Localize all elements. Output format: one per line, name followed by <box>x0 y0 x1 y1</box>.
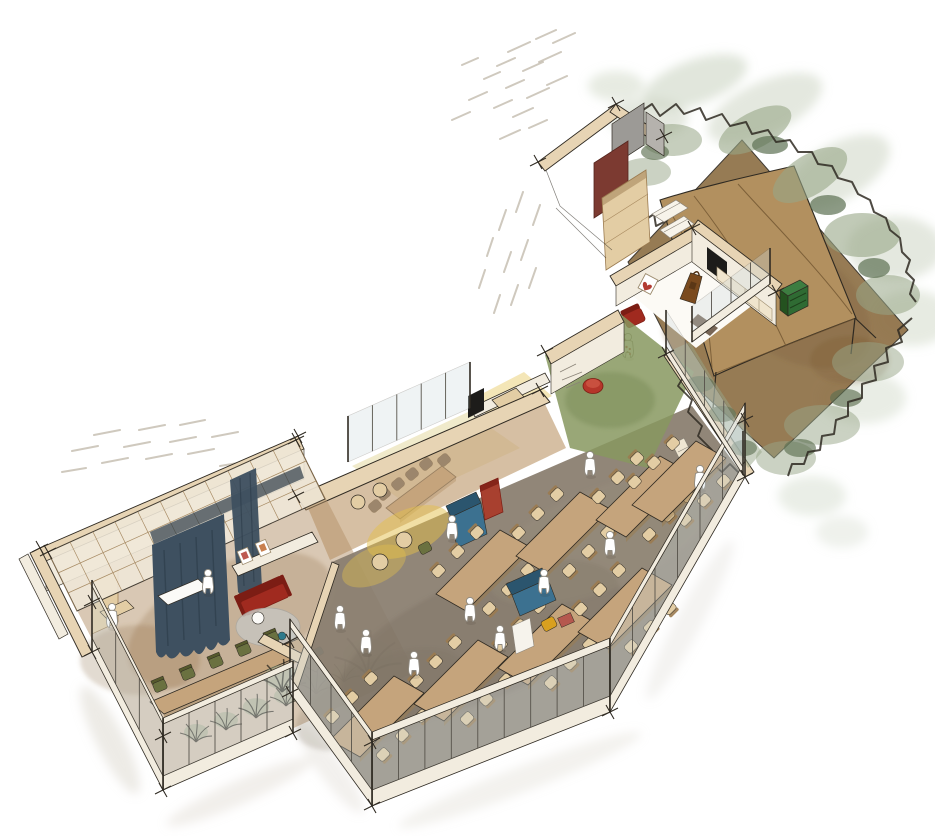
round-lamp <box>373 483 387 497</box>
pencil-stroke <box>504 252 511 272</box>
pencil-stroke <box>529 268 536 288</box>
red-pouf <box>583 379 603 394</box>
pencil-stroke <box>94 430 120 435</box>
pencil-stroke <box>511 285 518 305</box>
pencil-stroke <box>533 205 540 225</box>
round-table <box>396 532 412 548</box>
pencil-stroke <box>452 112 470 120</box>
pencil-stroke <box>521 240 528 260</box>
pencil-stroke <box>513 108 533 117</box>
pencil-stroke <box>500 130 520 139</box>
round-lamp <box>351 495 365 509</box>
pencil-stroke <box>146 454 172 459</box>
pencil-stroke <box>462 58 478 65</box>
pencil-stroke <box>506 80 524 88</box>
pencil-stroke <box>508 42 530 52</box>
pencil-stroke <box>494 295 500 313</box>
pencil-stroke <box>188 449 214 454</box>
pencil-stroke <box>72 446 98 451</box>
pencil-stroke <box>529 120 547 128</box>
pencil-stroke <box>536 30 556 39</box>
pencil-stroke <box>527 88 549 98</box>
grass-wash <box>565 372 655 428</box>
coffee-table <box>252 612 264 624</box>
pencil-stroke <box>494 100 512 108</box>
pencil-stroke <box>497 58 515 66</box>
pencil-stroke <box>180 420 205 425</box>
pencil-stroke <box>212 432 238 437</box>
pencil-stroke <box>553 33 575 43</box>
sketch-canvas <box>0 0 935 836</box>
round-table <box>372 554 388 570</box>
pencil-stroke <box>102 458 128 463</box>
pencil-stroke <box>62 468 86 472</box>
pencil-stroke <box>170 437 196 442</box>
pencil-stroke <box>523 62 543 71</box>
pencil-stroke <box>516 192 523 212</box>
pencil-stroke <box>547 76 567 85</box>
axonometric-cutaway-illustration <box>0 0 935 836</box>
pencil-stroke <box>469 92 487 100</box>
pencil-stroke <box>479 270 485 288</box>
pencil-stroke <box>139 425 165 430</box>
pencil-stroke <box>499 210 506 230</box>
pencil-stroke <box>124 442 150 447</box>
pencil-stroke <box>539 52 561 62</box>
pencil-stroke <box>487 238 493 256</box>
pencil-stroke <box>484 72 500 79</box>
